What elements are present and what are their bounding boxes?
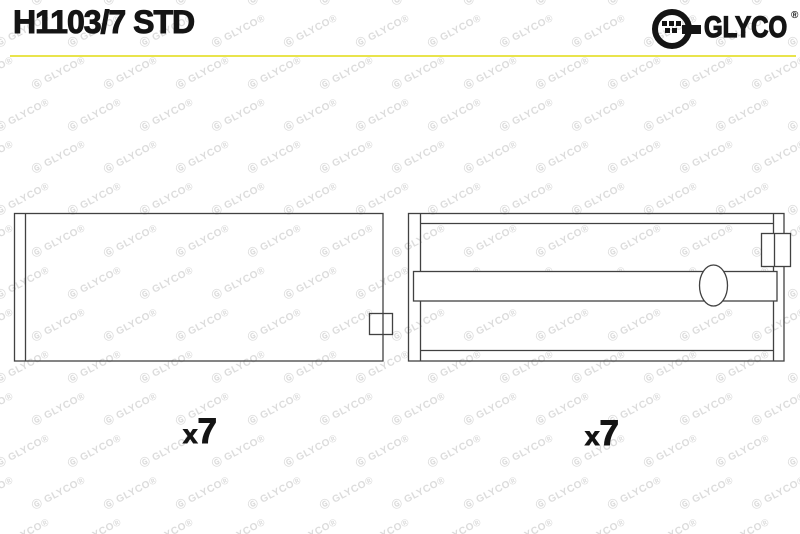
bearing-drawings xyxy=(0,0,800,534)
glyco-logo: GLYCO ® xyxy=(652,8,800,52)
left-shell-locating-lug xyxy=(370,314,393,335)
quantity-right: x7 xyxy=(562,416,642,451)
oil-hole xyxy=(700,265,728,306)
catalog-page: Ⓖ GLYCO®Ⓖ GLYCO®Ⓖ GLYCO®Ⓖ GLYCO®Ⓖ GLYCO®… xyxy=(0,0,800,534)
part-number: H1103/7 STD xyxy=(13,4,194,41)
emblem-bar xyxy=(682,25,701,34)
brand-name: GLYCO xyxy=(704,8,787,48)
quantity-left: x7 xyxy=(160,414,240,449)
right-shell-locating-lug xyxy=(762,234,791,267)
glyco-emblem-icon xyxy=(652,9,692,49)
accent-rule xyxy=(10,55,796,57)
registered-mark: ® xyxy=(791,10,798,21)
left-shell-outline xyxy=(15,214,384,362)
